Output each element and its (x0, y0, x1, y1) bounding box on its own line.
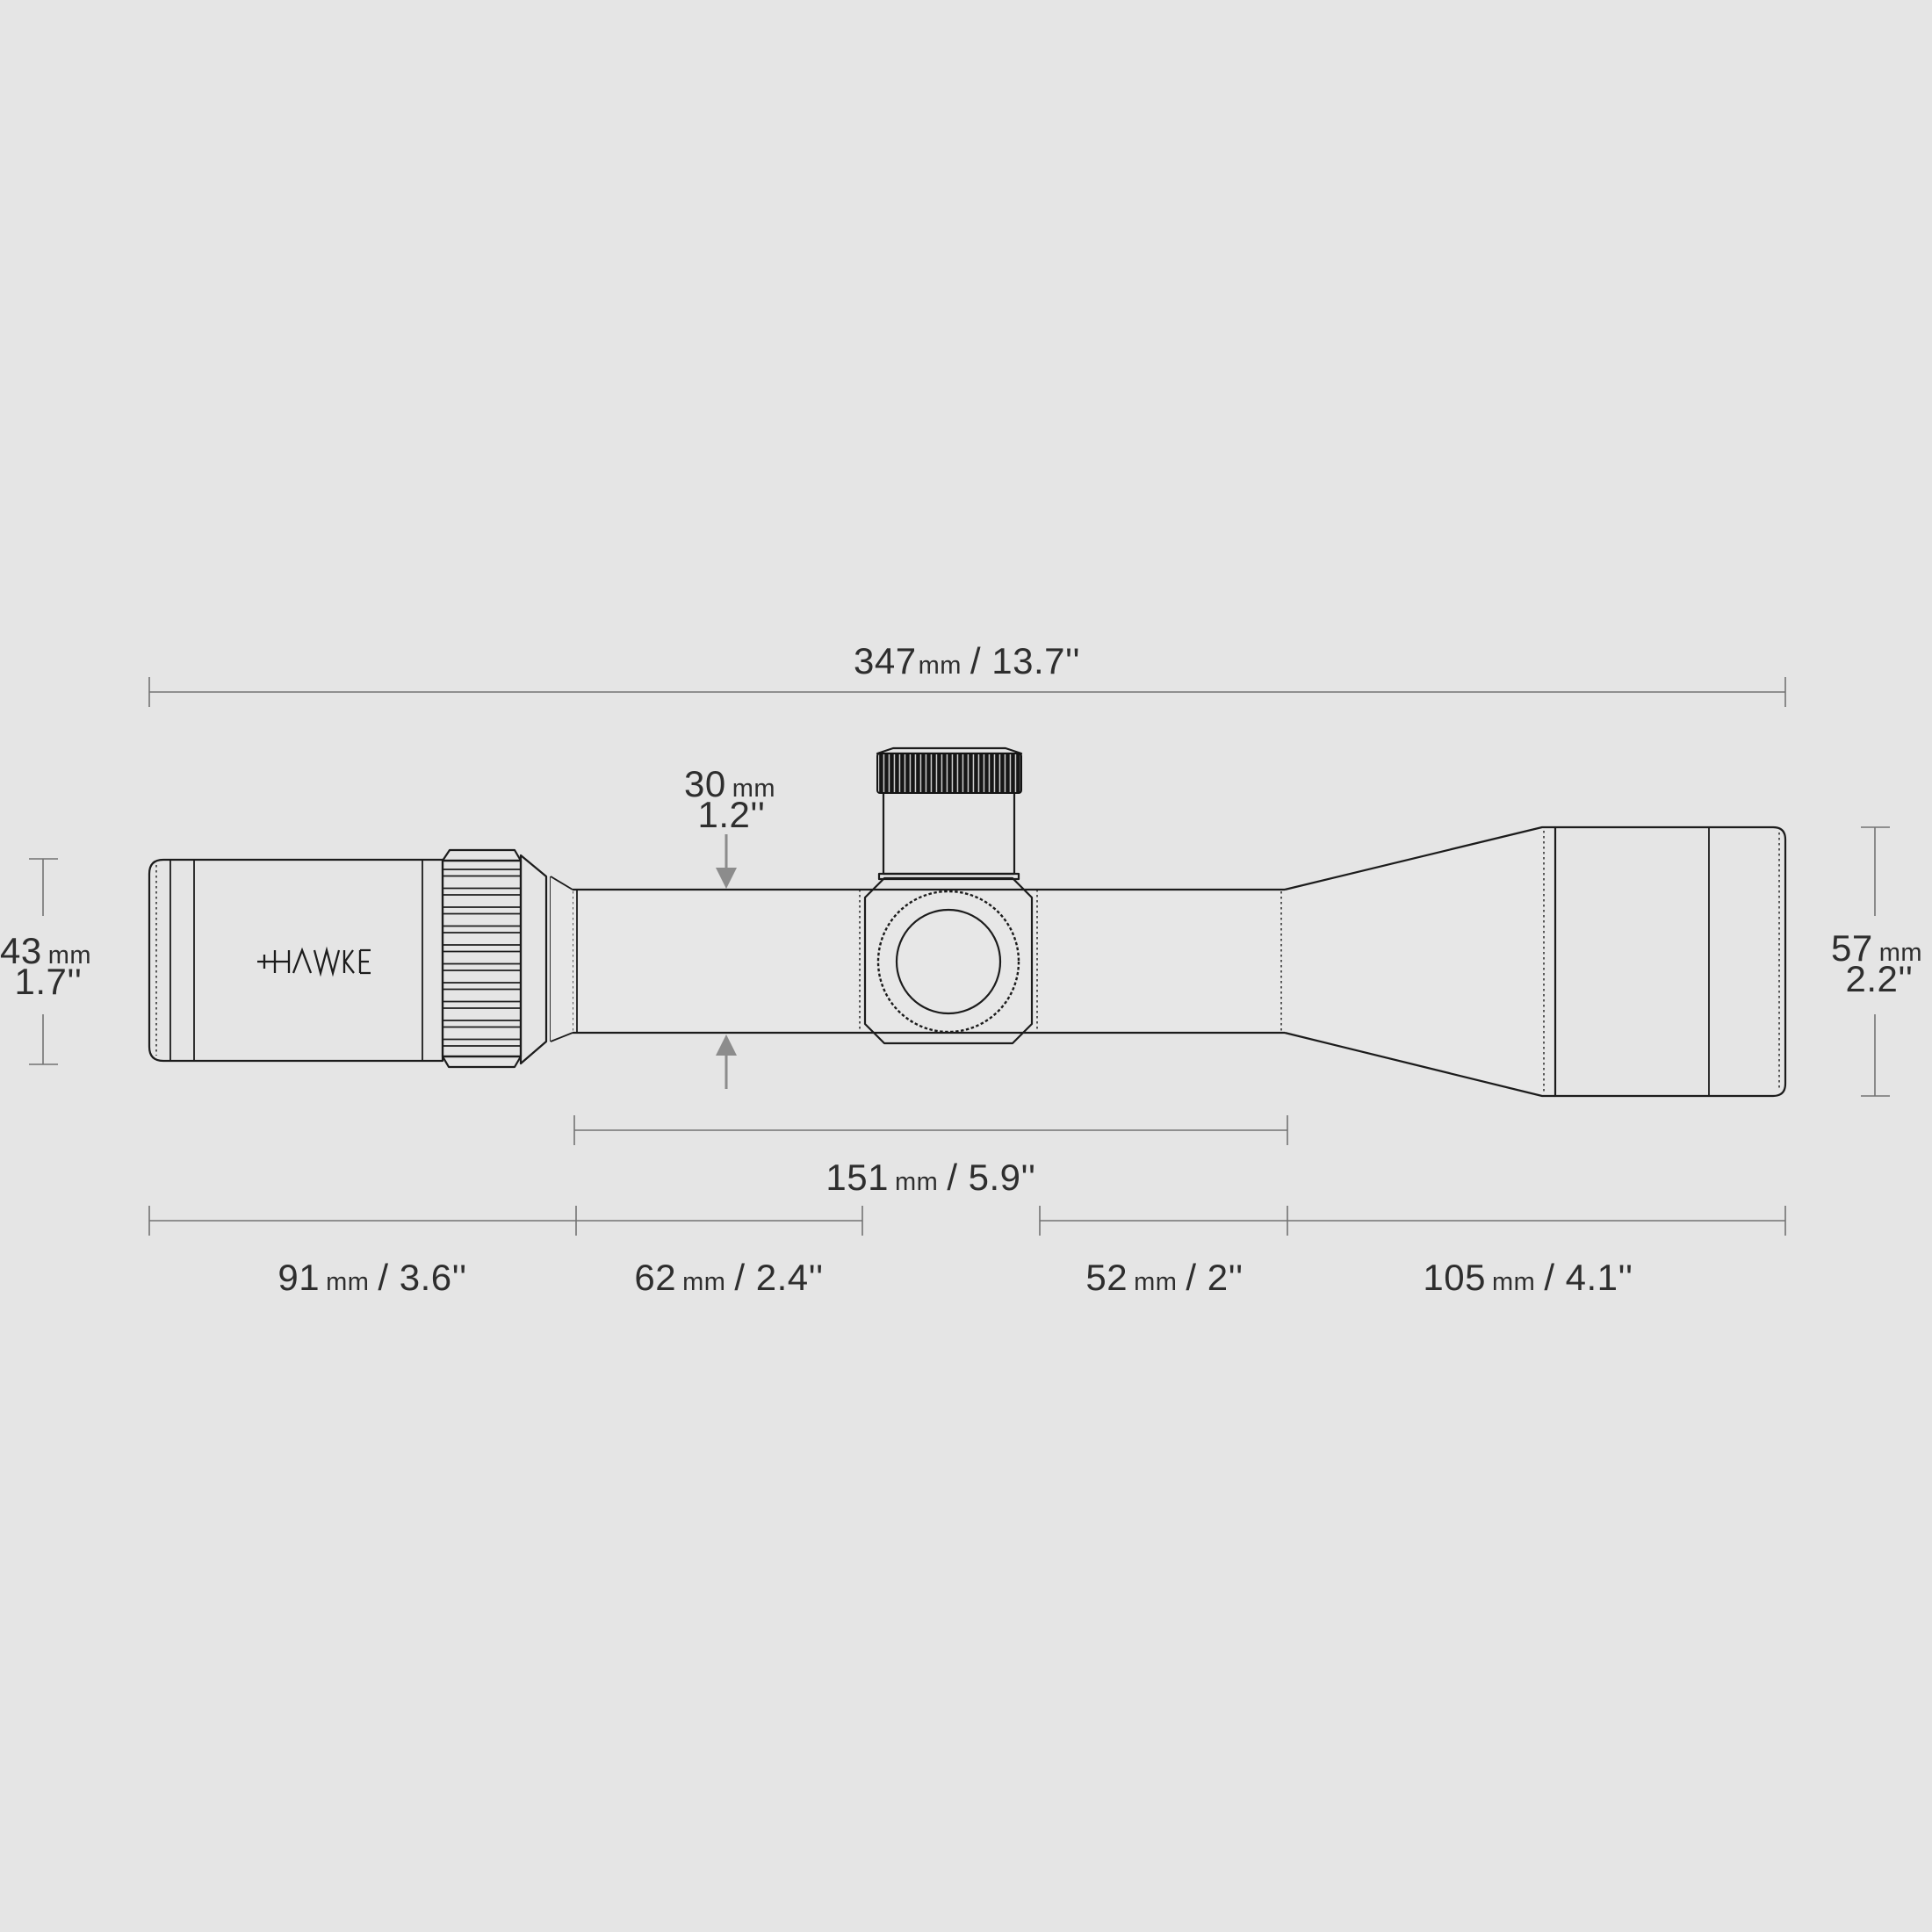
hawke-logo-icon: HAWKE (257, 950, 371, 973)
label-segment-52: 52mm/ 2'' (1085, 1257, 1243, 1298)
tube-transition (521, 855, 573, 1063)
objective-bell (1555, 827, 1785, 1096)
label-segment-62: 62mm/ 2.4'' (634, 1257, 823, 1298)
dim-line-total (149, 677, 1785, 707)
diagram-canvas: HAWKE (0, 0, 1932, 1932)
turret-cap-knurl (877, 753, 1021, 793)
label-segment-91: 91mm/ 3.6'' (278, 1257, 466, 1298)
power-ring (443, 850, 521, 1067)
objective-taper (1285, 827, 1555, 1096)
label-mount-length: 151mm/ 5.9'' (825, 1157, 1035, 1198)
elevation-turret (877, 748, 1021, 879)
label-segment-105: 105mm/ 4.1'' (1423, 1257, 1633, 1298)
dim-line-mount (574, 1115, 1287, 1145)
label-objective-diameter-inch: 2.2'' (1846, 958, 1914, 999)
label-eyepiece-diameter-inch: 1.7'' (15, 961, 83, 1002)
scope-dimension-diagram: HAWKE (0, 0, 1932, 1932)
eyepiece: HAWKE (149, 860, 443, 1061)
main-tube (573, 890, 1287, 1033)
arrow-down-icon (716, 868, 737, 889)
dim-line-front-segments (1040, 1206, 1785, 1236)
label-total-length: 347mm/ 13.7'' (854, 640, 1080, 681)
arrow-up-icon (716, 1034, 737, 1056)
label-tube-diameter-inch: 1.2'' (698, 794, 766, 835)
ring-knurl-texture (443, 869, 521, 1046)
dim-line-rear-segments (149, 1206, 862, 1236)
scope-drawing: HAWKE (149, 748, 1785, 1096)
